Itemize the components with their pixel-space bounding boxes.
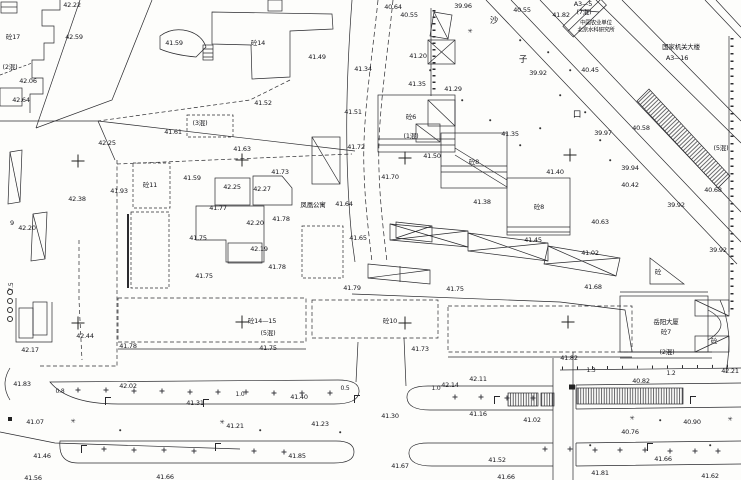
tree-mark-icon: [531, 396, 536, 401]
point-feature-icon: [519, 39, 521, 41]
building-label: 砼7: [661, 329, 671, 336]
tree-mark-icon: [160, 389, 165, 394]
road-name-char: 沙: [490, 17, 498, 26]
elevation-label: 41.59: [165, 40, 183, 47]
elevation-label: 41.20: [409, 53, 427, 60]
place-label: 北京水科研究所: [577, 28, 614, 34]
point-feature-icon: [609, 159, 611, 161]
place-label: 凤凰公寓: [300, 202, 325, 209]
solid-block-icon: [569, 385, 575, 390]
elevation-label: 40.63: [591, 219, 609, 226]
elevation-label: 41.93: [110, 188, 128, 195]
building-label: 砼10: [383, 318, 397, 325]
elevation-label: 42.38: [68, 196, 86, 203]
footpath-dashed: [312, 0, 455, 262]
elevation-label: 41.75: [259, 345, 277, 352]
grid-cross-icon: [399, 317, 412, 330]
elevation-label: 42.20: [246, 220, 264, 227]
building-label: (1混): [404, 133, 419, 140]
point-feature-icon: [547, 51, 549, 53]
elevation-label: 41.72: [347, 144, 365, 151]
elevation-label: 41.02: [581, 250, 599, 257]
elevation-label: 40.82: [632, 378, 650, 385]
tree-mark-icon: [102, 447, 107, 452]
building-label: 砼8: [534, 204, 544, 211]
elevation-label: 41.73: [411, 346, 429, 353]
elevation-label: 42.64: [12, 97, 30, 104]
elevation-label: 40.42: [621, 182, 639, 189]
elevation-label: 41.70: [381, 174, 399, 181]
elevation-label: 41.45: [524, 237, 542, 244]
elevation-label: 41.64: [335, 201, 353, 208]
elevation-label: 41.52: [488, 457, 506, 464]
elevation-label: 41.75: [446, 286, 464, 293]
elevation-label: 42.27: [253, 186, 271, 193]
grid-cross-icon: [72, 317, 85, 330]
elevation-label: 41.78: [272, 216, 290, 223]
place-label: 岳阳大厦: [653, 319, 678, 326]
elevation-label: 41.66: [654, 456, 672, 463]
street-lamp-icon: [690, 396, 696, 404]
tree-mark-icon: [192, 449, 197, 454]
elevation-label: 40.58: [632, 125, 650, 132]
tree-icon: ✳: [70, 419, 75, 425]
tree-mark-icon: [618, 448, 623, 453]
elevation-label: 42.19: [250, 246, 268, 253]
tree-mark-icon: [328, 391, 333, 396]
elevation-label: 42.59: [65, 34, 83, 41]
elevation-label: 41.68: [584, 284, 602, 291]
road-name-char: 口: [573, 111, 581, 120]
elevation-label: 41.46: [33, 453, 51, 460]
tree-mark-icon: [132, 389, 137, 394]
tree-mark-icon: [188, 390, 193, 395]
elevation-label: 41.40: [546, 169, 564, 176]
elevation-label: 42.25: [223, 184, 241, 191]
elevation-label: 41.78: [268, 264, 286, 271]
elevation-label: 41.77: [209, 205, 227, 212]
tree-mark-icon: [300, 391, 305, 396]
elevation-label: 39.92: [529, 70, 547, 77]
elevation-label: 41.83: [13, 381, 31, 388]
elevation-label: 41.67: [391, 463, 409, 470]
elevation-label: 39.94: [621, 165, 639, 172]
tree-mark-icon: [593, 448, 598, 453]
elevation-label: 42.21: [721, 368, 739, 375]
elevation-label: 42.17: [21, 347, 39, 354]
elevation-label: 41.02: [523, 417, 541, 424]
building-label: (2混): [660, 349, 675, 356]
shrub-circle-icon: [7, 298, 13, 304]
point-feature-icon: [709, 444, 711, 446]
street-lamp-icon: [354, 395, 360, 403]
point-feature-icon: [569, 69, 571, 71]
place-label: 中国农业单位: [580, 21, 612, 27]
elevation-label: 41.85: [288, 453, 306, 460]
elevation-label: 42.20: [18, 225, 36, 232]
elevation-label: 41.51: [344, 109, 362, 116]
grid-cross-icon: [562, 316, 575, 329]
elevation-label: 41.34: [354, 66, 372, 73]
grid-cross-icon: [72, 155, 85, 168]
elevation-label: 42.06: [19, 78, 37, 85]
elevation-label: 41.07: [26, 419, 44, 426]
elevation-label: 41.66: [156, 474, 174, 480]
elevation-label: 41.63: [233, 146, 251, 153]
tree-mark-icon: [668, 449, 673, 454]
elevation-label: 41.82: [552, 12, 570, 19]
place-label: A3—16: [666, 55, 688, 62]
dimension-label: 0.8: [56, 389, 65, 395]
elevation-label: 41.61: [164, 129, 182, 136]
elevation-label: 41.50: [423, 153, 441, 160]
point-feature-icon: [519, 144, 521, 146]
building-label: 砼11: [143, 182, 157, 189]
street-lamp-icon: [81, 445, 87, 453]
elevation-label: 41.23: [311, 421, 329, 428]
tree-icon: ✳: [727, 417, 732, 423]
elevation-label: 41.29: [444, 86, 462, 93]
tree-icon: ✳: [219, 420, 224, 426]
elevation-label: 41.49: [308, 54, 326, 61]
elevation-label: 42.22: [63, 2, 81, 9]
grid-cross-icon: [399, 152, 412, 165]
elevation-label: 40.68: [704, 187, 722, 194]
point-feature-icon: [429, 69, 431, 71]
point-feature-icon: [559, 94, 561, 96]
elevation-label: 39.92: [667, 202, 685, 209]
tree-mark-icon: [132, 448, 137, 453]
street-lamp-icon: [105, 397, 111, 405]
tree-mark-icon: [244, 390, 249, 395]
tree-mark-icon: [272, 391, 277, 396]
building-label: 砼: [711, 338, 717, 345]
tree-mark-icon: [543, 447, 548, 452]
elevation-label: 40.55: [513, 7, 531, 14]
grid-cross-icon: [236, 154, 249, 167]
tree-mark-icon: [453, 395, 458, 400]
point-feature-icon: [119, 429, 121, 431]
survey-map-canvas: 42.2240.6439.9640.5540.5541.8242.5941.59…: [0, 0, 741, 480]
elevation-label: 41.35: [501, 131, 519, 138]
tree-mark-icon: [568, 447, 573, 452]
tree-mark-icon: [505, 396, 510, 401]
tree-mark-icon: [162, 448, 167, 453]
building-label: 9: [10, 220, 14, 227]
tree-icon: ✳: [629, 416, 634, 422]
elevation-label: 40.76: [621, 429, 639, 436]
dimension-label: 1.3: [587, 368, 596, 374]
elevation-label: 40.90: [683, 419, 701, 426]
road-name-char: 子: [519, 56, 527, 65]
street-lamp-icon: [647, 443, 653, 451]
elevation-label: 41.38: [473, 199, 491, 206]
elevation-label: 41.35: [408, 81, 426, 88]
building-label: (7混): [577, 9, 592, 16]
shrub-circle-icon: [7, 307, 13, 313]
building-label: (2混): [3, 64, 18, 71]
building-label: 砼: [655, 269, 661, 276]
top-left-parcels: [0, 0, 355, 160]
point-feature-icon: [539, 127, 541, 129]
elevation-label: 41.62: [701, 473, 719, 480]
elevation-label: 41.82: [560, 355, 578, 362]
tree-mark-icon: [282, 450, 287, 455]
point-feature-icon: [584, 111, 586, 113]
elevation-label: 40.55: [400, 12, 418, 19]
building-label: 砼6: [406, 114, 416, 121]
point-feature-icon: [259, 429, 261, 431]
point-feature-icon: [339, 431, 341, 433]
tree-mark-icon: [104, 388, 109, 393]
tree-mark-icon: [643, 448, 648, 453]
point-feature-icon: [659, 419, 661, 421]
solid-block-icon: [8, 417, 12, 421]
elevation-label: 41.66: [497, 474, 515, 480]
elevation-label: 41.59: [183, 175, 201, 182]
elevation-label: 40.64: [384, 4, 402, 11]
elevation-label: 41.75: [189, 235, 207, 242]
building-label: (3混): [193, 120, 208, 127]
elevation-label: 41.73: [271, 169, 289, 176]
elevation-label: 41.56: [24, 475, 42, 480]
point-feature-icon: [489, 119, 491, 121]
building-label: 砼14: [251, 40, 265, 47]
shrub-circle-icon: [7, 289, 13, 295]
tree-mark-icon: [693, 449, 698, 454]
elevation-label: 41.79: [343, 285, 361, 292]
building-label: (5混): [261, 330, 276, 337]
point-feature-icon: [599, 139, 601, 141]
elevation-label: 41.31: [186, 400, 204, 407]
elevation-label: 42.25: [98, 140, 116, 147]
ne-street-lines: [486, 0, 741, 312]
elevation-label: 42.11: [469, 376, 487, 383]
building-label: A3—5: [574, 1, 592, 8]
elevation-label: 41.52: [254, 100, 272, 107]
shrub-circle-icon: [7, 316, 13, 322]
elevation-label: 39.92: [709, 247, 727, 254]
elevation-label: 41.78: [119, 343, 137, 350]
place-label: 国家机关大楼: [662, 44, 700, 51]
elevation-label: 42.14: [441, 382, 459, 389]
elevation-label: 42.44: [76, 333, 94, 340]
dimension-label: 0.5: [341, 386, 350, 392]
elevation-label: 41.65: [349, 235, 367, 242]
tree-mark-icon: [479, 395, 484, 400]
building-label: 砼17: [6, 34, 20, 41]
dimension-label: 1.0: [432, 386, 441, 392]
street-lamp-icon: [494, 396, 500, 404]
building-label: 砼8: [469, 159, 479, 166]
elevation-label: 39.97: [594, 130, 612, 137]
grid-cross-icon: [236, 316, 249, 329]
tree-mark-icon: [252, 449, 257, 454]
elevation-label: 41.16: [469, 411, 487, 418]
elevation-label: 41.81: [591, 470, 609, 477]
dimension-label: 1.2: [667, 371, 676, 377]
building-label: (5混): [714, 145, 729, 152]
point-feature-icon: [461, 99, 463, 101]
elevation-label: 40.45: [581, 67, 599, 74]
street-lamp-icon: [203, 399, 209, 407]
elevation-label: 41.75: [195, 273, 213, 280]
building-label: 砼14—15: [248, 318, 276, 325]
grid-cross-icon: [564, 149, 577, 162]
central-compound: [40, 154, 632, 386]
street-lamp-icon: [215, 443, 221, 451]
tree-icon: ✳: [467, 29, 472, 35]
point-feature-icon: [589, 444, 591, 446]
tree-mark-icon: [216, 390, 221, 395]
elevation-label: 41.30: [381, 413, 399, 420]
tree-mark-icon: [76, 388, 81, 393]
elevation-label: 39.96: [454, 3, 472, 10]
elevation-label: 41.21: [226, 423, 244, 430]
tree-mark-icon: [716, 449, 721, 454]
